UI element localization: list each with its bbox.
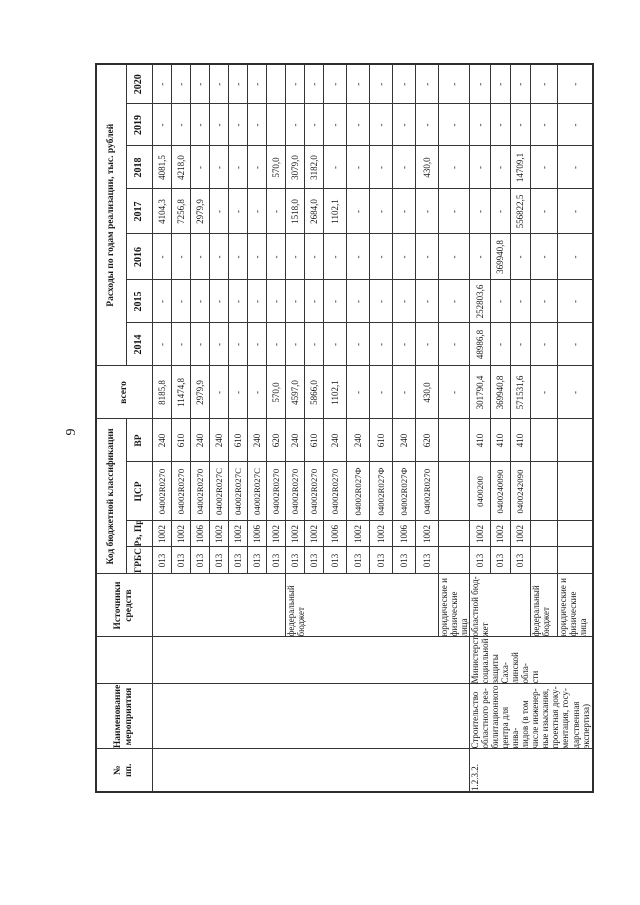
rz-pr-cell: 1002: [266, 521, 285, 547]
year-value-cell: -: [171, 64, 190, 104]
csr-cell: 04002R0270: [415, 462, 438, 521]
year-value-cell: -: [438, 104, 469, 146]
csr-cell: 04002R0270: [304, 462, 323, 521]
year-value-cell: -: [285, 280, 304, 323]
total-cell: -: [438, 366, 469, 419]
year-value-cell: -: [228, 234, 247, 280]
rz-pr-cell: 1002: [490, 521, 510, 547]
year-value-cell: -: [415, 234, 438, 280]
total-cell: 2979,9: [190, 366, 209, 419]
csr-cell: 04002R027С: [228, 462, 247, 521]
year-value-cell: -: [369, 323, 392, 366]
year-value-cell: 4104,3: [152, 189, 171, 234]
year-value-cell: -: [369, 280, 392, 323]
year-value-cell: -: [415, 64, 438, 104]
year-value-cell: -: [247, 234, 266, 280]
rz-pr-cell: [438, 521, 469, 547]
year-value-cell: -: [557, 146, 593, 189]
rz-pr-cell: [557, 521, 593, 547]
csr-cell: 04002R0270: [152, 462, 171, 521]
year-value-cell: 430,0: [415, 146, 438, 189]
grbs-cell: 013: [171, 547, 190, 574]
vr-cell: 240: [209, 419, 228, 462]
year-value-cell: -: [346, 234, 369, 280]
total-cell: -: [530, 366, 557, 419]
year-value-cell: -: [323, 146, 346, 189]
vr-cell: 240: [247, 419, 266, 462]
col-header-year: 2018: [126, 146, 152, 189]
year-value-cell: -: [190, 146, 209, 189]
csr-cell: 04002R0270: [266, 462, 285, 521]
year-value-cell: -: [228, 189, 247, 234]
year-value-cell: -: [392, 104, 415, 146]
total-cell: 1102,1: [323, 366, 346, 419]
grbs-cell: [530, 547, 557, 574]
vr-cell: 240: [392, 419, 415, 462]
page-number: 9: [64, 420, 80, 444]
year-value-cell: -: [438, 234, 469, 280]
year-value-cell: -: [392, 280, 415, 323]
year-value-cell: -: [469, 189, 490, 234]
total-cell: 430,0: [415, 366, 438, 419]
year-value-cell: -: [285, 323, 304, 366]
year-value-cell: -: [247, 189, 266, 234]
year-value-cell: -: [557, 189, 593, 234]
vr-cell: 240: [346, 419, 369, 462]
year-value-cell: -: [392, 234, 415, 280]
total-cell: 8185,8: [152, 366, 171, 419]
col-header-year: 2015: [126, 280, 152, 323]
executor-cell: [152, 637, 469, 684]
year-value-cell: 1518,0: [285, 189, 304, 234]
year-value-cell: -: [209, 323, 228, 366]
total-cell: -: [228, 366, 247, 419]
rz-pr-cell: 1002: [209, 521, 228, 547]
year-value-cell: -: [369, 64, 392, 104]
year-value-cell: -: [171, 280, 190, 323]
rz-pr-cell: 1006: [323, 521, 346, 547]
vr-cell: [438, 419, 469, 462]
year-value-cell: 3182,0: [304, 146, 323, 189]
grbs-cell: 013: [490, 547, 510, 574]
year-value-cell: 2979,9: [190, 189, 209, 234]
year-value-cell: -: [285, 64, 304, 104]
year-value-cell: -: [304, 104, 323, 146]
col-header-name: Наименование мероприятия: [96, 684, 152, 749]
col-header-total: всего: [96, 366, 152, 419]
vr-cell: 410: [490, 419, 510, 462]
year-value-cell: -: [266, 234, 285, 280]
col-header-year: 2014: [126, 323, 152, 366]
year-value-cell: -: [209, 64, 228, 104]
col-header-vr: ВР: [126, 419, 152, 462]
year-value-cell: -: [530, 234, 557, 280]
item-no-cell: [152, 749, 469, 792]
year-value-cell: -: [415, 189, 438, 234]
total-cell: -: [247, 366, 266, 419]
year-value-cell: -: [209, 104, 228, 146]
year-value-cell: -: [323, 104, 346, 146]
year-value-cell: -: [209, 280, 228, 323]
year-value-cell: -: [152, 234, 171, 280]
csr-cell: 04002R027С: [247, 462, 266, 521]
csr-cell: [438, 462, 469, 521]
year-value-cell: -: [323, 234, 346, 280]
vr-cell: 410: [469, 419, 490, 462]
rz-pr-cell: 1002: [369, 521, 392, 547]
year-value-cell: -: [152, 104, 171, 146]
grbs-cell: 013: [346, 547, 369, 574]
year-value-cell: 2684,0: [304, 189, 323, 234]
year-value-cell: -: [490, 323, 510, 366]
csr-cell: 04002R027Ф: [392, 462, 415, 521]
grbs-cell: 013: [469, 547, 490, 574]
rz-pr-cell: 1002: [469, 521, 490, 547]
year-value-cell: -: [346, 146, 369, 189]
csr-cell: 0400240090: [490, 462, 510, 521]
year-value-cell: 369940,8: [490, 234, 510, 280]
grbs-cell: 013: [152, 547, 171, 574]
year-value-cell: -: [490, 280, 510, 323]
total-cell: -: [392, 366, 415, 419]
year-value-cell: -: [209, 189, 228, 234]
grbs-cell: 013: [285, 547, 304, 574]
source-cell: федеральный бюджет: [285, 574, 438, 637]
grbs-cell: 013: [510, 547, 530, 574]
csr-cell: 04002R0270: [171, 462, 190, 521]
year-value-cell: -: [530, 64, 557, 104]
year-value-cell: -: [323, 280, 346, 323]
year-value-cell: -: [190, 64, 209, 104]
year-value-cell: -: [304, 323, 323, 366]
rotated-landscape-sheet: 9 № пп.Наименование мероприятияИсточники…: [0, 0, 640, 905]
table-row: 013100204002R02702408185,8---4104,34081,…: [152, 64, 171, 792]
total-cell: 11474,8: [171, 366, 190, 419]
year-value-cell: -: [369, 234, 392, 280]
year-value-cell: -: [469, 64, 490, 104]
year-value-cell: -: [285, 234, 304, 280]
year-value-cell: -: [323, 64, 346, 104]
col-header-no: № пп.: [96, 749, 152, 792]
year-value-cell: -: [152, 280, 171, 323]
year-value-cell: -: [510, 323, 530, 366]
rz-pr-cell: 1006: [247, 521, 266, 547]
year-value-cell: -: [530, 280, 557, 323]
csr-cell: 04002R027Ф: [346, 462, 369, 521]
csr-cell: 04002R027С: [209, 462, 228, 521]
year-value-cell: -: [346, 189, 369, 234]
year-value-cell: -: [190, 234, 209, 280]
executor-cell: Министерство социальной защиты Саха- лин…: [469, 637, 593, 684]
year-value-cell: -: [415, 104, 438, 146]
total-cell: -: [369, 366, 392, 419]
year-value-cell: -: [304, 280, 323, 323]
total-cell: -: [209, 366, 228, 419]
year-value-cell: -: [392, 64, 415, 104]
year-value-cell: -: [510, 64, 530, 104]
total-cell: 570,0: [266, 366, 285, 419]
year-value-cell: -: [209, 146, 228, 189]
csr-cell: 04002R027Ф: [369, 462, 392, 521]
item-name-cell: Строительство областного реа- билитацион…: [469, 684, 593, 749]
col-header-grbs: ГРБС: [126, 547, 152, 574]
year-value-cell: -: [557, 323, 593, 366]
year-value-cell: -: [285, 104, 304, 146]
col-header-budget-class: Код бюджетной классификации: [96, 419, 126, 574]
year-value-cell: -: [369, 104, 392, 146]
rz-pr-cell: 1002: [152, 521, 171, 547]
year-value-cell: -: [392, 189, 415, 234]
csr-cell: 0400242090: [510, 462, 530, 521]
year-value-cell: -: [247, 104, 266, 146]
year-value-cell: -: [392, 323, 415, 366]
csr-cell: [557, 462, 593, 521]
csr-cell: 04002R0270: [323, 462, 346, 521]
year-value-cell: -: [346, 104, 369, 146]
total-cell: -: [557, 366, 593, 419]
year-value-cell: -: [369, 146, 392, 189]
rz-pr-cell: 1002: [285, 521, 304, 547]
rz-pr-cell: 1002: [171, 521, 190, 547]
table-row: 1.2.3.2.Строительство областного реа- би…: [469, 64, 490, 792]
vr-cell: 610: [304, 419, 323, 462]
vr-cell: 620: [266, 419, 285, 462]
year-value-cell: -: [557, 104, 593, 146]
year-value-cell: -: [557, 64, 593, 104]
year-value-cell: -: [171, 234, 190, 280]
budget-table: № пп.Наименование мероприятияИсточники с…: [95, 63, 594, 793]
source-cell: областной бюд- жет: [469, 574, 530, 637]
vr-cell: 410: [510, 419, 530, 462]
year-value-cell: -: [438, 280, 469, 323]
year-value-cell: -: [228, 323, 247, 366]
year-value-cell: [266, 64, 285, 104]
year-value-cell: 4218,0: [171, 146, 190, 189]
source-cell: юридические и физические лица: [557, 574, 593, 637]
rz-pr-cell: 1006: [190, 521, 209, 547]
year-value-cell: -: [171, 104, 190, 146]
year-value-cell: -: [469, 104, 490, 146]
year-value-cell: -: [557, 234, 593, 280]
col-header-year: 2020: [126, 64, 152, 104]
year-value-cell: -: [469, 234, 490, 280]
grbs-cell: 013: [323, 547, 346, 574]
col-header-year: 2017: [126, 189, 152, 234]
year-value-cell: -: [490, 64, 510, 104]
year-value-cell: -: [346, 323, 369, 366]
grbs-cell: 013: [415, 547, 438, 574]
year-value-cell: 3079,0: [285, 146, 304, 189]
source-cell: федеральный бюджет: [530, 574, 557, 637]
year-value-cell: -: [415, 280, 438, 323]
vr-cell: 240: [285, 419, 304, 462]
year-value-cell: -: [346, 280, 369, 323]
year-value-cell: 14709,1: [510, 146, 530, 189]
item-name-cell: [152, 684, 469, 749]
year-value-cell: -: [266, 189, 285, 234]
col-header-expenses: Расходы по годам реализации, тыс. рублей: [96, 64, 126, 366]
vr-cell: 240: [323, 419, 346, 462]
csr-cell: 04002R0270: [190, 462, 209, 521]
year-value-cell: -: [152, 64, 171, 104]
year-value-cell: -: [438, 323, 469, 366]
year-value-cell: 4081,5: [152, 146, 171, 189]
year-value-cell: -: [510, 104, 530, 146]
year-value-cell: -: [209, 234, 228, 280]
rz-pr-cell: 1006: [392, 521, 415, 547]
year-value-cell: 570,0: [266, 146, 285, 189]
col-header-csr: ЦСР: [126, 462, 152, 521]
year-value-cell: 48986,8: [469, 323, 490, 366]
year-value-cell: -: [304, 234, 323, 280]
year-value-cell: -: [323, 323, 346, 366]
year-value-cell: -: [438, 64, 469, 104]
year-value-cell: -: [369, 189, 392, 234]
total-cell: 4597,0: [285, 366, 304, 419]
vr-cell: [530, 419, 557, 462]
vr-cell: 610: [369, 419, 392, 462]
document-page: 9 № пп.Наименование мероприятияИсточники…: [0, 0, 640, 905]
grbs-cell: [557, 547, 593, 574]
year-value-cell: -: [557, 280, 593, 323]
vr-cell: 620: [415, 419, 438, 462]
year-value-cell: 7256,8: [171, 189, 190, 234]
source-cell: [152, 574, 285, 637]
vr-cell: 240: [152, 419, 171, 462]
year-value-cell: -: [266, 323, 285, 366]
rz-pr-cell: 1002: [304, 521, 323, 547]
total-cell: -: [346, 366, 369, 419]
year-value-cell: -: [190, 104, 209, 146]
year-value-cell: -: [530, 146, 557, 189]
year-value-cell: [266, 104, 285, 146]
year-value-cell: -: [415, 323, 438, 366]
year-value-cell: -: [247, 64, 266, 104]
year-value-cell: -: [190, 323, 209, 366]
year-value-cell: -: [510, 280, 530, 323]
year-value-cell: -: [530, 323, 557, 366]
year-value-cell: -: [228, 280, 247, 323]
rz-pr-cell: 1002: [346, 521, 369, 547]
year-value-cell: 1102,1: [323, 189, 346, 234]
col-header-year: 2016: [126, 234, 152, 280]
total-cell: 571531,6: [510, 366, 530, 419]
year-value-cell: -: [346, 64, 369, 104]
total-cell: 369940,8: [490, 366, 510, 419]
year-value-cell: -: [228, 64, 247, 104]
year-value-cell: -: [530, 104, 557, 146]
year-value-cell: -: [490, 189, 510, 234]
rz-pr-cell: 1002: [228, 521, 247, 547]
csr-cell: 04002R0270: [285, 462, 304, 521]
grbs-cell: 013: [247, 547, 266, 574]
grbs-cell: 013: [190, 547, 209, 574]
year-value-cell: -: [247, 280, 266, 323]
year-value-cell: 252803,6: [469, 280, 490, 323]
grbs-cell: 013: [209, 547, 228, 574]
year-value-cell: -: [228, 146, 247, 189]
year-value-cell: -: [247, 146, 266, 189]
year-value-cell: -: [490, 146, 510, 189]
vr-cell: 610: [171, 419, 190, 462]
year-value-cell: 556822,5: [510, 189, 530, 234]
grbs-cell: 013: [304, 547, 323, 574]
csr-cell: 0400200: [469, 462, 490, 521]
year-value-cell: -: [469, 146, 490, 189]
vr-cell: 240: [190, 419, 209, 462]
vr-cell: [557, 419, 593, 462]
csr-cell: [530, 462, 557, 521]
year-value-cell: -: [228, 104, 247, 146]
grbs-cell: 013: [266, 547, 285, 574]
header-row: № пп.Наименование мероприятияИсточники с…: [96, 64, 126, 792]
grbs-cell: 013: [228, 547, 247, 574]
rz-pr-cell: [530, 521, 557, 547]
year-value-cell: -: [266, 280, 285, 323]
source-cell: юридические и физические лица: [438, 574, 469, 637]
item-no-cell: 1.2.3.2.: [469, 749, 593, 792]
year-value-cell: -: [530, 189, 557, 234]
grbs-cell: 013: [392, 547, 415, 574]
total-cell: 5866,0: [304, 366, 323, 419]
grbs-cell: [438, 547, 469, 574]
col-header-year: 2019: [126, 104, 152, 146]
year-value-cell: -: [190, 280, 209, 323]
col-header-sources: Источники средств: [96, 574, 152, 637]
year-value-cell: -: [392, 146, 415, 189]
rz-pr-cell: 1002: [510, 521, 530, 547]
year-value-cell: -: [304, 64, 323, 104]
grbs-cell: 013: [369, 547, 392, 574]
year-value-cell: -: [152, 323, 171, 366]
rz-pr-cell: 1002: [415, 521, 438, 547]
year-value-cell: -: [490, 104, 510, 146]
year-value-cell: -: [171, 323, 190, 366]
col-header-executor: [96, 637, 152, 684]
col-header-rz-pr: Рз, Пр: [126, 521, 152, 547]
year-value-cell: -: [438, 146, 469, 189]
year-value-cell: -: [438, 189, 469, 234]
vr-cell: 610: [228, 419, 247, 462]
total-cell: 301790,4: [469, 366, 490, 419]
year-value-cell: -: [247, 323, 266, 366]
year-value-cell: -: [510, 234, 530, 280]
